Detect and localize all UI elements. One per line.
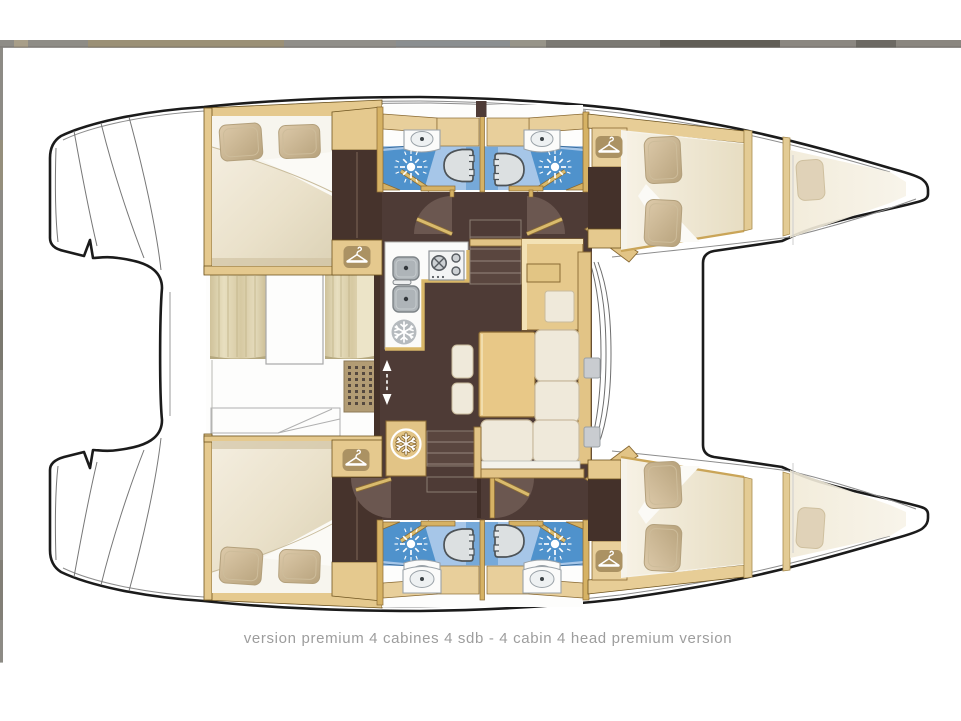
svg-text:version premium 4 cabines 4 sd: version premium 4 cabines 4 sdb - 4 cabi… <box>244 630 733 647</box>
